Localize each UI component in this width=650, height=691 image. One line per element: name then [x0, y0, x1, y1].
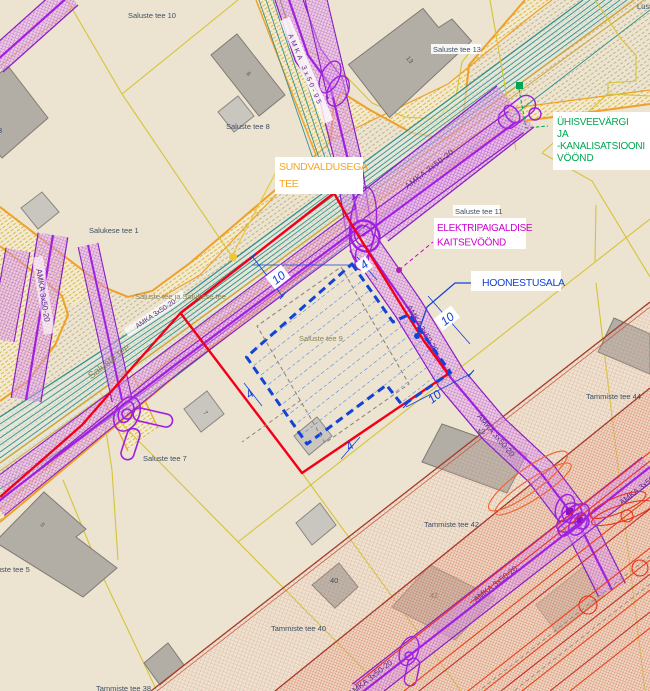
svg-text:-KANALISATSIOONI: -KANALISATSIOONI	[557, 141, 645, 152]
svg-text:40: 40	[330, 576, 338, 585]
svg-text:TEE: TEE	[279, 178, 299, 190]
svg-text:Tammiste tee 40: Tammiste tee 40	[271, 624, 326, 633]
svg-text:JA: JA	[557, 129, 569, 140]
svg-text:Saluste tee 7: Saluste tee 7	[143, 454, 187, 463]
svg-text:SUNDVALDUSEGA: SUNDVALDUSEGA	[279, 161, 368, 173]
svg-text:ELEKTRIPAIGALDISE: ELEKTRIPAIGALDISE	[437, 223, 533, 234]
svg-text:Saluste tee 11: Saluste tee 11	[455, 207, 502, 216]
svg-text:Tammiste tee 38: Tammiste tee 38	[96, 684, 151, 691]
svg-text:VÖÖND: VÖÖND	[557, 152, 594, 164]
svg-text:Saluste tee 10: Saluste tee 10	[128, 11, 176, 20]
svg-text:Saluste tee 13: Saluste tee 13	[433, 45, 481, 54]
svg-text:Saluste tee ja Salukese tee: Saluste tee ja Salukese tee	[135, 292, 226, 301]
svg-text:Saluste tee 8: Saluste tee 8	[226, 122, 270, 131]
svg-text:3: 3	[0, 126, 2, 135]
svg-text:Tammiste tee 44: Tammiste tee 44	[586, 392, 641, 401]
svg-text:Lüst: Lüst	[637, 2, 650, 11]
svg-text:42: 42	[477, 427, 485, 436]
svg-text:Salukese tee 1: Salukese tee 1	[89, 226, 139, 235]
svg-text:Tammiste tee 42: Tammiste tee 42	[424, 520, 479, 529]
svg-text:Saluste tee 5: Saluste tee 5	[0, 565, 30, 574]
svg-text:Saluste tee 9: Saluste tee 9	[299, 334, 343, 343]
svg-text:HOONESTUSALA: HOONESTUSALA	[482, 277, 565, 289]
svg-text:ÜHISVEEVÄRGI: ÜHISVEEVÄRGI	[557, 116, 628, 128]
svg-text:KAITSEVÖÖND: KAITSEVÖÖND	[437, 237, 506, 249]
